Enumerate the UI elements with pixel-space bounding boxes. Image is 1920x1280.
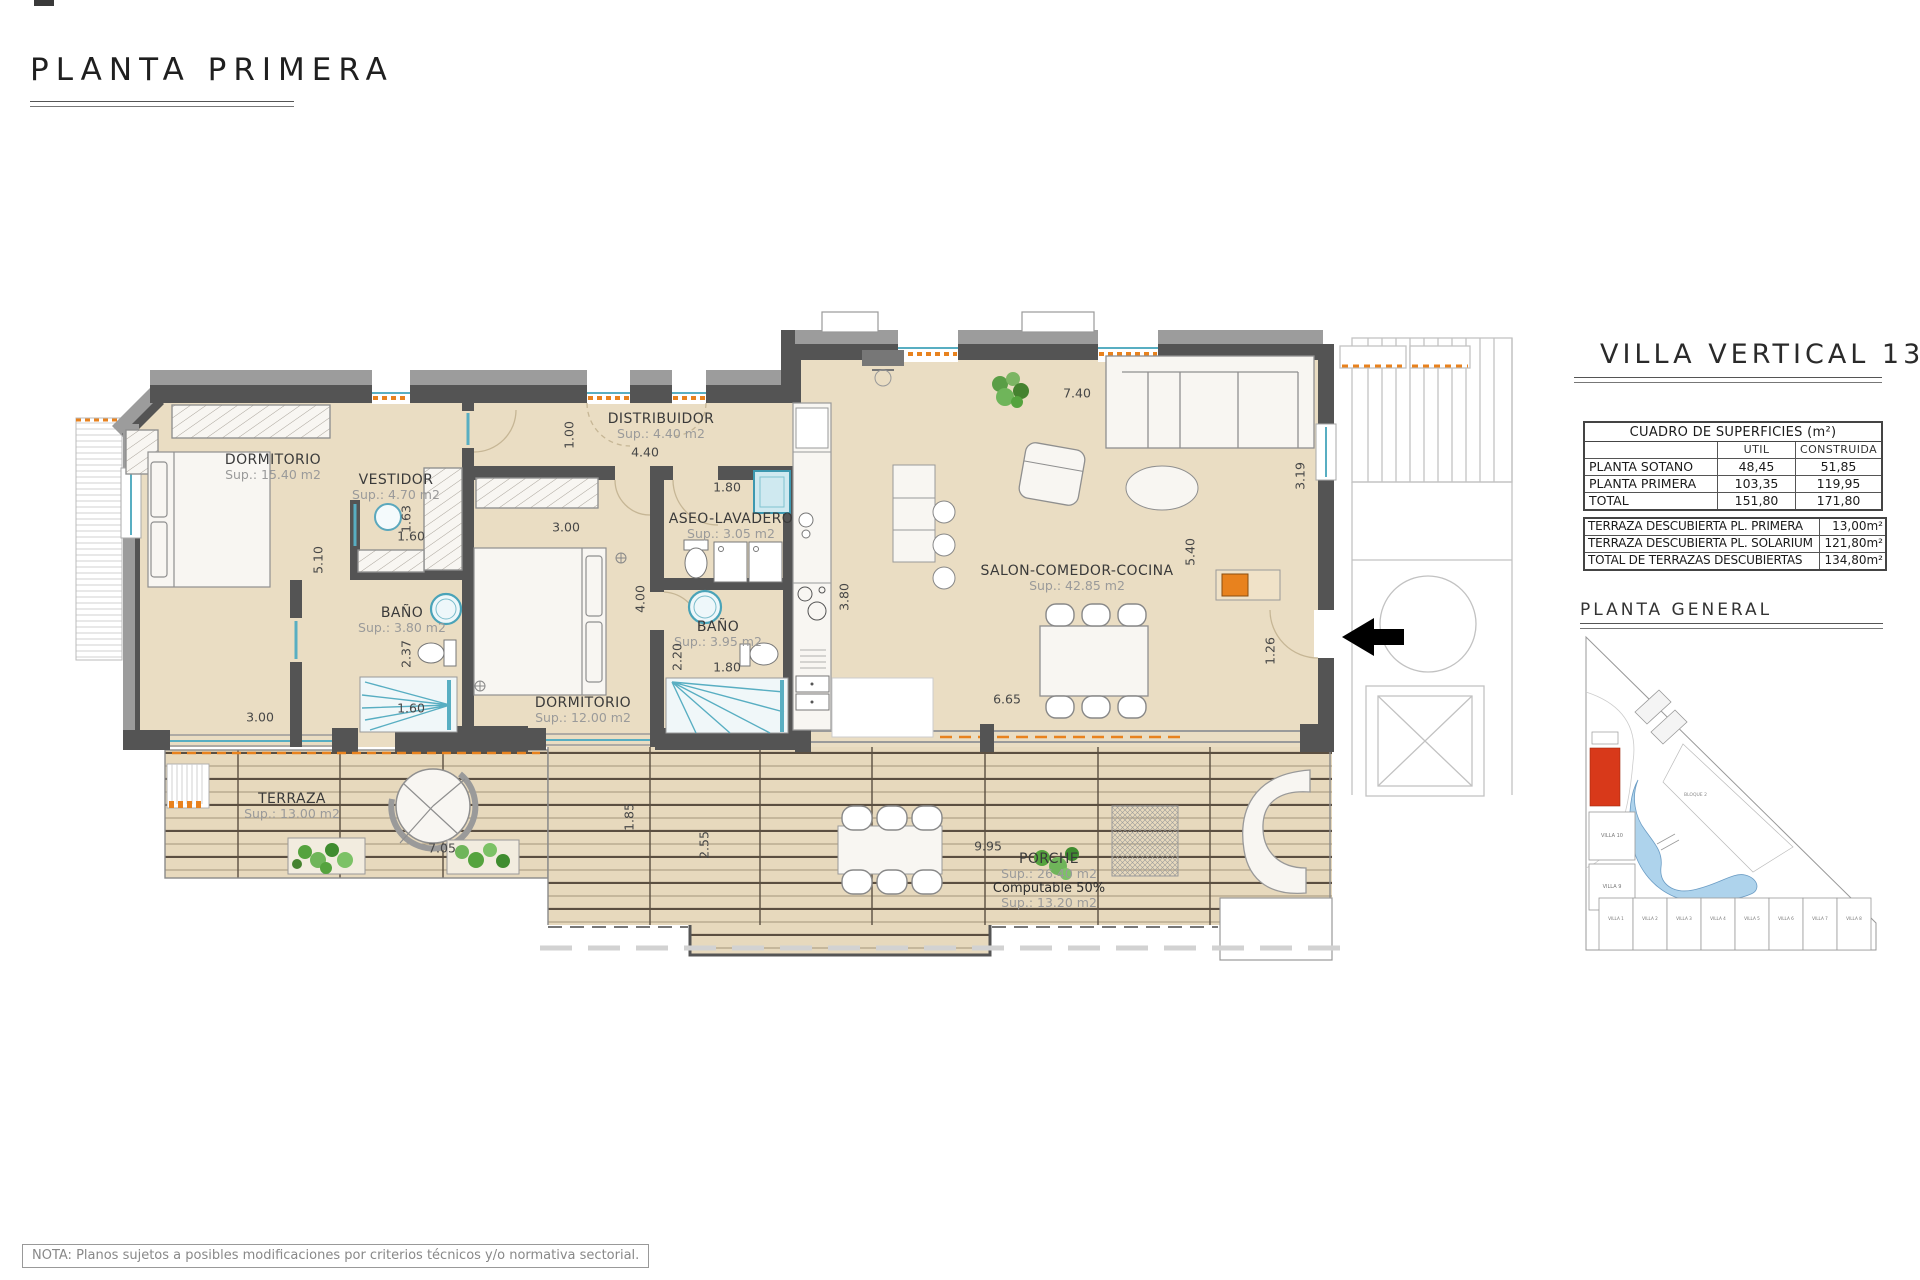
room-label-terraza: TERRAZA Sup.: 13.00 m2 [244,792,340,821]
dimension: 9.95 [974,839,1002,854]
room-label-banio-2: BAÑO Sup.: 3.95 m2 [674,620,762,649]
table-row: PLANTA PRIMERA 103,35 119,95 [1585,475,1881,492]
dimension: 1.80 [713,660,741,675]
svg-text:VILLA 2: VILLA 2 [1642,916,1658,921]
dimension: 2.55 [697,831,712,859]
porch-step [1220,898,1332,960]
site-plan-map: BLOQUE 2 VILLA 10 VILLA 9 VILLA 1 VILLA … [1583,632,1883,962]
dimension: 4.40 [631,445,659,460]
dining-set-icon [1040,604,1148,718]
outdoor-table [832,678,933,737]
table-row: TOTAL 151,80 171,80 [1585,492,1881,509]
side-planter-strip [76,418,122,660]
dimension: 1.60 [397,529,425,544]
stool-icon [933,567,955,589]
svg-text:VILLA 4: VILLA 4 [1710,916,1726,921]
svg-text:VILLA 1: VILLA 1 [1608,916,1624,921]
table-row: TOTAL DE TERRAZAS DESCUBIERTAS 134,80m² [1585,552,1885,569]
stair-circle [1380,576,1476,672]
room-label-dormitorio-2: DORMITORIO Sup.: 12.00 m2 [535,696,631,725]
villa-label: VILLA 9 [1603,884,1622,890]
coffee-table-icon [1126,466,1198,510]
dimension: 3.19 [1293,462,1308,490]
room-label-distribuidor: DISTRIBUIDOR Sup.: 4.40 m2 [608,412,715,441]
stool-icon [933,501,955,523]
kitchen-sink-icon [799,513,813,527]
table-row: TERRAZA DESCUBIERTA PL. SOLARIUM 121,80m… [1585,535,1885,552]
dimension: 1.85 [622,803,637,831]
dimension: 2.37 [399,640,414,668]
dimension: 6.65 [993,692,1021,707]
kitchen-counter [793,403,831,730]
outdoor-dining-set-icon [838,806,942,894]
dimension: 3.80 [837,583,852,611]
site-block-label: BLOQUE 2 [1684,792,1707,798]
table-row: TERRAZA DESCUBIERTA PL. PRIMERA 13,00m² [1585,519,1885,535]
table-row: PLANTA SOTANO 48,45 51,85 [1585,458,1881,475]
entrance-arrow-icon [1342,618,1404,656]
armchair-icon [1018,441,1087,507]
dimension: 1.80 [713,480,741,495]
dimension: 4.00 [633,585,648,613]
room-label-salon: SALON-COMEDOR-COCINA Sup.: 42.85 m2 [980,564,1173,593]
svg-text:VILLA 6: VILLA 6 [1778,916,1794,921]
villa-heading: VILLA VERTICAL 13 [1600,339,1920,370]
svg-text:VILLA 8: VILLA 8 [1846,916,1862,921]
svg-text:VILLA 7: VILLA 7 [1812,916,1828,921]
entrance-opening [1314,610,1338,658]
dimension: 3.00 [246,710,274,725]
room-label-vestidor: VESTIDOR Sup.: 4.70 m2 [352,473,440,502]
villa-heading-underline [1574,377,1882,383]
plan-sheet: PLANTA PRIMERA [0,0,1920,1280]
villas-row: VILLA 1 VILLA 2 VILLA 3 VILLA 4 VILLA 5 … [1599,898,1871,950]
dimension: 7.40 [1063,386,1091,401]
villa-label: VILLA 10 [1601,833,1623,839]
toilet-icon [444,640,456,666]
stool-icon [933,534,955,556]
room-label-dormitorio-1: DORMITORIO Sup.: 15.40 m2 [225,453,321,482]
room-label-porche: PORCHE Sup.: 26.40 m2 Computable 50% Sup… [993,852,1105,910]
dimension: 5.10 [311,546,326,574]
dimension: 1.26 [1263,637,1278,665]
surface-table-caption: CUADRO DE SUPERFICIES (m²) [1585,423,1881,442]
surface-table-header: UTIL CONSTRUIDA [1585,442,1881,458]
shower-icon [666,678,788,733]
surface-table: CUADRO DE SUPERFICIES (m²) UTIL CONSTRUI… [1583,421,1883,511]
dimension: 7.05 [428,841,456,856]
site-plan-heading: PLANTA GENERAL [1580,600,1772,620]
sofa-icon [1106,356,1314,448]
outdoor-rug-icon [1112,806,1178,876]
dimension: 5.40 [1183,538,1198,566]
dimension: 1.60 [397,701,425,716]
site-plan-underline [1580,623,1883,629]
room-label-aseo-lavadero: ASEO-LAVADERO Sup.: 3.05 m2 [669,512,793,541]
svg-text:VILLA 5: VILLA 5 [1744,916,1760,921]
vanity-stool-icon [375,504,401,530]
dimension: 1.00 [562,421,577,449]
room-label-banio-1: BAÑO Sup.: 3.80 m2 [358,606,446,635]
fireplace-icon [1216,570,1280,600]
highlighted-villa-13 [1590,748,1620,806]
stair-core [1340,338,1512,796]
disclaimer-note: NOTA: Planos sujetos a posibles modifica… [22,1244,649,1268]
dimension: 2.20 [670,643,685,671]
terrace-table: TERRAZA DESCUBIERTA PL. PRIMERA 13,00m² … [1583,517,1887,571]
tv-unit-icon [862,350,904,366]
dimension: 3.00 [552,520,580,535]
svg-text:VILLA 3: VILLA 3 [1676,916,1692,921]
